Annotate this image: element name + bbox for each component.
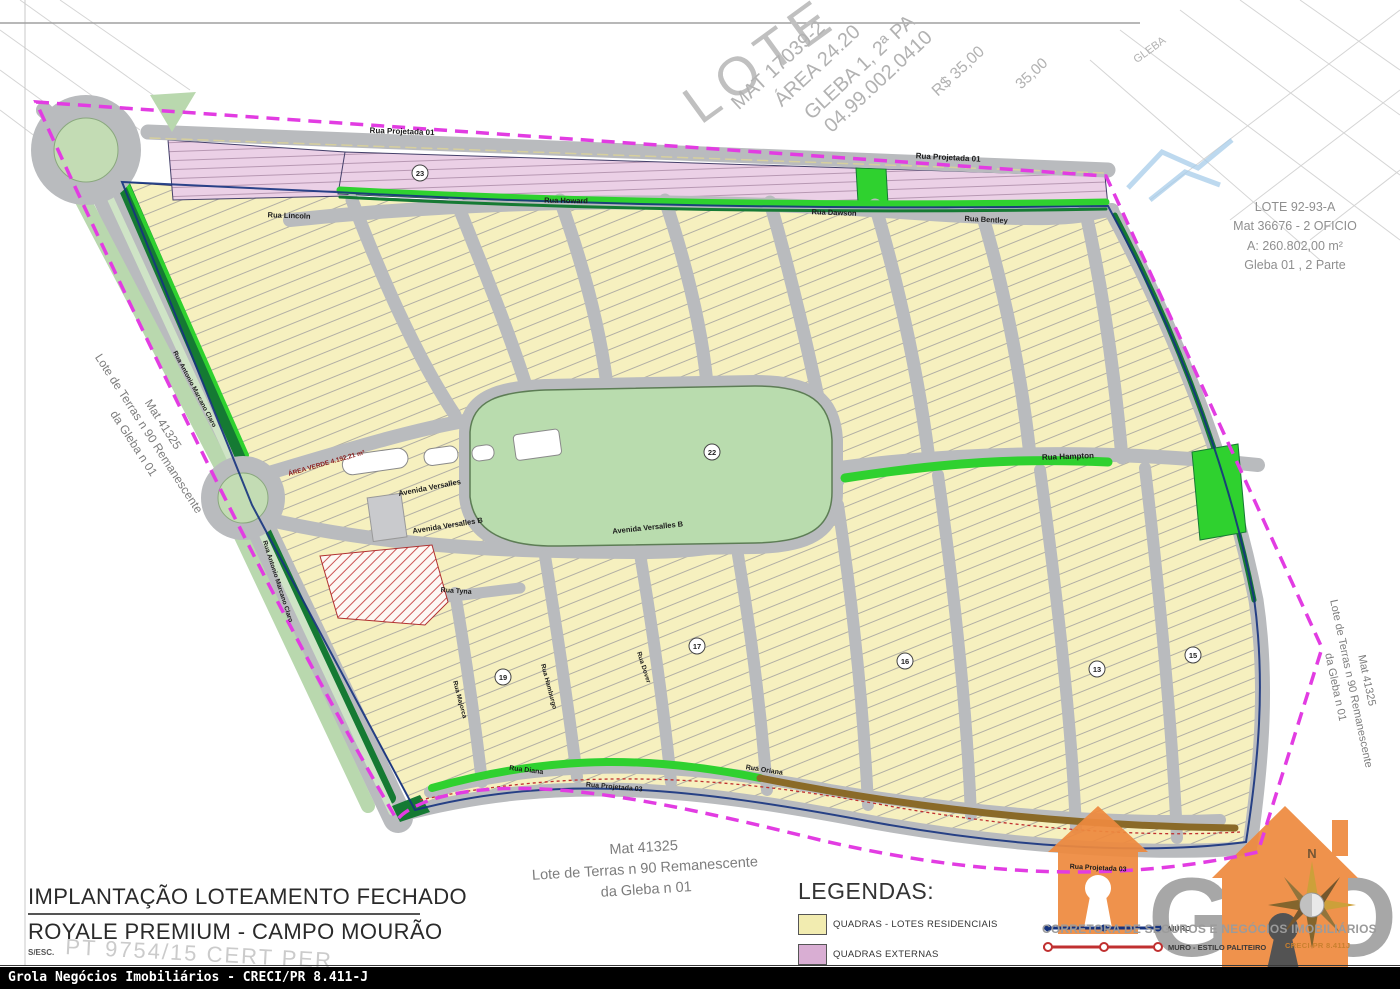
brand-tagline: CORRETORA DE SEGUROS E NEGÓCIOS IMOBILIÁ… [1042,922,1387,936]
footer-bar: Grola Negócios Imobiliários - CRECI/PR 8… [0,967,1400,989]
street-label: Rua Lincoln [267,210,311,221]
svg-text:17: 17 [693,642,701,651]
block-number-badge: 22 [704,444,720,460]
street-label: Rua Howard [544,196,588,206]
neighbor-parcel-note: LOTE 92-93-A Mat 36676 - 2 OFICIO A: 260… [1200,198,1390,276]
brand-creci: CRECI-PR 8.411J [1285,941,1350,950]
legend: LEGENDAS: QUADRAS - LOTES RESIDENCIAIS Q… [798,878,998,965]
block-number-badge: 16 [897,653,913,669]
residential-swatch [798,914,827,935]
block-number-badge: 15 [1185,647,1201,663]
svg-text:13: 13 [1093,665,1101,674]
street-label: Rua Dawson [811,207,857,218]
block-number-badge: 19 [495,669,511,685]
title-block: IMPLANTAÇÃO LOTEAMENTO FECHADO ROYALE PR… [28,884,443,957]
scale-note: S/ESC. [28,948,443,957]
site-plan-page: GROLA N [0,0,1400,989]
svg-text:16: 16 [901,657,909,666]
external-swatch [798,944,827,965]
page-title: IMPLANTAÇÃO LOTEAMENTO FECHADO [28,884,420,915]
legend-item-external: QUADRAS EXTERNAS [798,944,998,965]
compass-north-label: N [1307,846,1316,861]
block-number-badge: 17 [689,638,705,654]
footer-text: Grola Negócios Imobiliários - CRECI/PR 8… [8,970,368,985]
legend-heading: LEGENDAS: [798,878,998,905]
block-number-badge: 23 [412,165,428,181]
block-number-badge: 13 [1089,661,1105,677]
legend-item-residential: QUADRAS - LOTES RESIDENCIAIS [798,914,998,935]
street-label: Rua Hampton [1042,451,1094,462]
legend-paliteiro-label: MURO - ESTILO PALITEIRO [1168,943,1266,952]
svg-text:19: 19 [499,673,507,682]
page-subtitle: ROYALE PREMIUM - CAMPO MOURÃO [28,919,443,945]
svg-text:15: 15 [1189,651,1197,660]
hatched-area [320,545,448,625]
svg-text:22: 22 [708,448,716,457]
svg-text:23: 23 [416,169,424,178]
footer-divider [0,965,1400,966]
